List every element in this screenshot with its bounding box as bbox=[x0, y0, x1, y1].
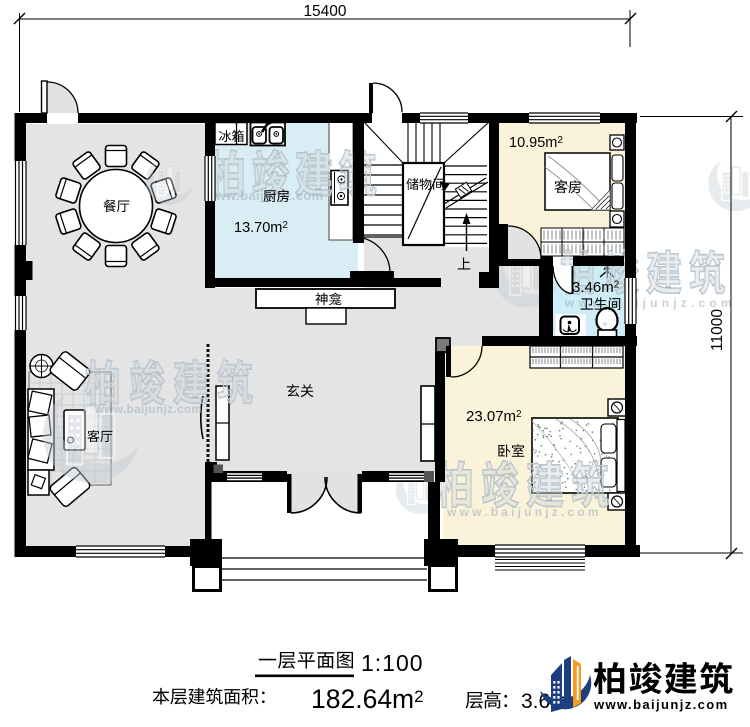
svg-text:23.07m2: 23.07m2 bbox=[466, 408, 522, 425]
svg-text:3.46m2: 3.46m2 bbox=[572, 279, 620, 296]
svg-text:1:100: 1:100 bbox=[361, 650, 424, 676]
svg-text:15400: 15400 bbox=[303, 3, 346, 20]
svg-text:www.baijunjz.com: www.baijunjz.com bbox=[593, 697, 729, 712]
svg-text:www.baijunjz.com: www.baijunjz.com bbox=[446, 505, 602, 519]
svg-text:13.70m2: 13.70m2 bbox=[234, 220, 288, 236]
svg-text:www.baijunjz.com: www.baijunjz.com bbox=[564, 296, 736, 310]
svg-text:10.95m2: 10.95m2 bbox=[509, 135, 563, 151]
svg-text:www.baijunjz.com: www.baijunjz.com bbox=[94, 404, 202, 416]
svg-text:182.64m2: 182.64m2 bbox=[311, 684, 424, 714]
svg-text:11000: 11000 bbox=[709, 309, 726, 351]
